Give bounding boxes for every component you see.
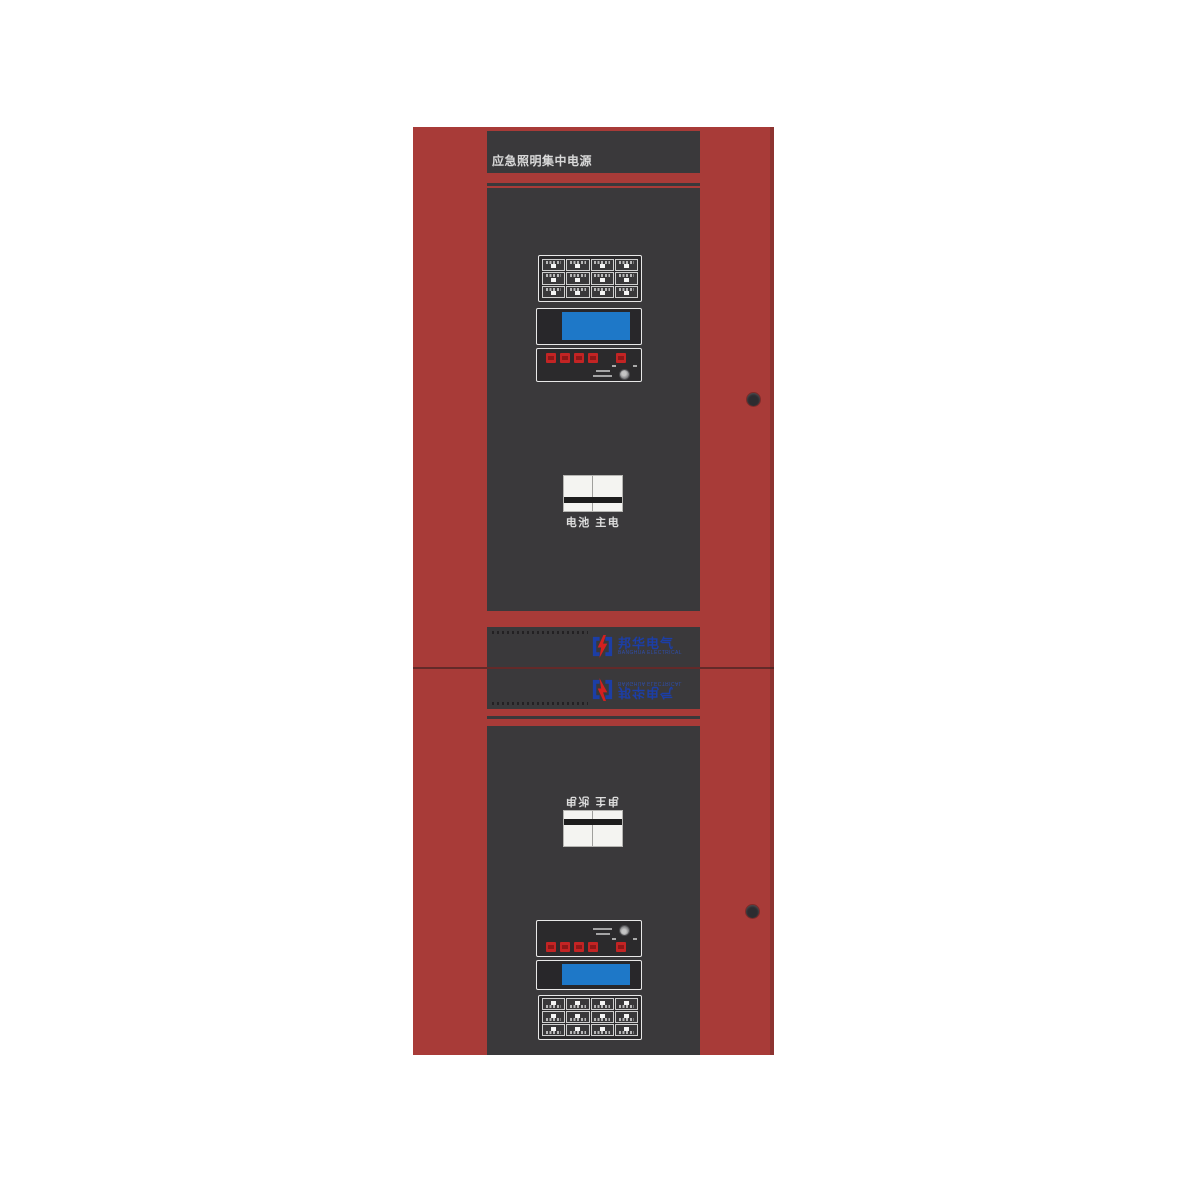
keypad-grid [542, 259, 638, 298]
function-key[interactable] [591, 1024, 614, 1036]
brand-band-upper: 邦华电气 BANGHUA ELECTRICAL [487, 627, 700, 667]
function-key[interactable] [542, 272, 565, 284]
brand-name: 邦华电气 [618, 637, 682, 650]
product-title: 应急照明集中电源 [492, 152, 592, 169]
function-keypad-upper [538, 255, 642, 302]
function-key-label [619, 1031, 634, 1034]
trim-line-top [487, 183, 700, 186]
brand-name: 邦华电气 [618, 686, 682, 699]
function-key-label [546, 1031, 561, 1034]
function-key[interactable] [615, 272, 638, 284]
function-key-label [594, 1005, 609, 1008]
function-key-label [570, 1005, 585, 1008]
brand-subtitle: BANGHUA ELECTRICAL [618, 680, 682, 685]
indicator-button-4[interactable] [588, 353, 598, 363]
function-key-button[interactable] [551, 278, 556, 282]
function-key-label [619, 274, 634, 277]
function-key-button[interactable] [624, 278, 629, 282]
function-key[interactable] [591, 1011, 614, 1023]
indicator-button-1[interactable] [546, 942, 556, 952]
key-switch-knob-upper[interactable] [619, 369, 630, 380]
function-key-label [546, 1005, 561, 1008]
function-key-label [546, 274, 561, 277]
power-cabinet: 应急照明集中电源 [413, 127, 774, 1055]
key-switch-knob-lower[interactable] [619, 925, 630, 936]
function-key[interactable] [615, 1024, 638, 1036]
function-key[interactable] [566, 286, 589, 298]
function-key[interactable] [591, 272, 614, 284]
indicator-button-3[interactable] [574, 353, 584, 363]
function-key-button[interactable] [551, 291, 556, 295]
trim-line-bottom [487, 716, 700, 719]
vent-dots [492, 702, 588, 705]
function-key-button[interactable] [624, 264, 629, 268]
cabinet-right-edge [770, 127, 774, 1055]
caption-line [593, 375, 612, 377]
indicator-button-5[interactable] [616, 353, 626, 363]
breaker-mains[interactable] [593, 476, 622, 511]
function-key-label [570, 1031, 585, 1034]
breaker-battery[interactable] [564, 476, 593, 511]
brand-band-lower-mirrored: 邦华电气 BANGHUA ELECTRICAL [487, 669, 700, 709]
function-key-label [619, 261, 634, 264]
function-key-label [546, 288, 561, 291]
function-key[interactable] [542, 998, 565, 1010]
function-key[interactable] [566, 1024, 589, 1036]
function-key-label [619, 1005, 634, 1008]
function-key[interactable] [615, 998, 638, 1010]
brand-logo: 邦华电气 BANGHUA ELECTRICAL [590, 634, 682, 659]
function-key-label [594, 1018, 609, 1021]
knob-tick [612, 365, 616, 367]
function-key-label [619, 288, 634, 291]
function-key-button[interactable] [600, 278, 605, 282]
function-key-button[interactable] [575, 264, 580, 268]
knob-tick [633, 938, 637, 940]
function-key[interactable] [566, 272, 589, 284]
main-panel-lower: 电池 主电 [487, 726, 700, 1055]
caption-line [596, 933, 610, 935]
function-key-button[interactable] [624, 291, 629, 295]
function-key[interactable] [615, 286, 638, 298]
function-key-label [594, 261, 609, 264]
brand-logo: 邦华电气 BANGHUA ELECTRICAL [590, 677, 682, 702]
function-key-label [570, 288, 585, 291]
function-key-button[interactable] [575, 278, 580, 282]
function-key-label [619, 1018, 634, 1021]
function-key-label [570, 274, 585, 277]
function-key-button[interactable] [551, 264, 556, 268]
lcd-panel-upper [536, 308, 642, 345]
breaker-label-upper: 电池 主电 [547, 514, 639, 530]
keypad-grid [542, 999, 638, 1036]
indicator-button-2[interactable] [560, 353, 570, 363]
function-key[interactable] [591, 259, 614, 271]
knob-tick [612, 938, 616, 940]
function-key-label [546, 261, 561, 264]
function-key[interactable] [615, 259, 638, 271]
breaker-state-band [564, 819, 622, 825]
brand-subtitle: BANGHUA ELECTRICAL [618, 651, 682, 656]
function-key[interactable] [542, 1011, 565, 1023]
function-key[interactable] [615, 1011, 638, 1023]
indicator-panel-upper [536, 348, 642, 382]
indicator-button-4[interactable] [588, 942, 598, 952]
breaker-switch-lower [563, 810, 623, 847]
indicator-panel-lower [536, 920, 642, 957]
function-key-label [594, 288, 609, 291]
function-key[interactable] [591, 998, 614, 1010]
product-image: 应急照明集中电源 [0, 0, 1200, 1200]
indicator-button-2[interactable] [560, 942, 570, 952]
function-key[interactable] [542, 259, 565, 271]
breaker-state-band [564, 497, 622, 503]
screw-hole-upper [747, 393, 760, 406]
function-key[interactable] [566, 1011, 589, 1023]
caption-line [596, 370, 610, 372]
function-key-button[interactable] [600, 291, 605, 295]
indicator-button-1[interactable] [546, 353, 556, 363]
indicator-button-3[interactable] [574, 942, 584, 952]
knob-tick [633, 365, 637, 367]
function-key-label [570, 261, 585, 264]
lcd-screen-upper [562, 312, 630, 340]
caption-line [593, 928, 612, 930]
function-key-button[interactable] [575, 291, 580, 295]
brand-logo-icon [590, 677, 615, 702]
function-key-label [546, 1018, 561, 1021]
lcd-screen-lower [562, 964, 630, 985]
function-key[interactable] [542, 286, 565, 298]
title-band: 应急照明集中电源 [487, 131, 700, 173]
breaker-label-lower: 电池 主电 [547, 794, 639, 810]
main-panel-upper: 电池 主电 [487, 188, 700, 611]
function-key-button[interactable] [600, 264, 605, 268]
function-key-label [594, 274, 609, 277]
function-key[interactable] [566, 998, 589, 1010]
brand-logo-icon [590, 634, 615, 659]
function-key-label [570, 1018, 585, 1021]
indicator-button-5[interactable] [616, 942, 626, 952]
function-key[interactable] [591, 286, 614, 298]
breaker-switch-upper [563, 475, 623, 512]
breaker-mains[interactable] [593, 811, 622, 846]
function-key[interactable] [542, 1024, 565, 1036]
breaker-battery[interactable] [564, 811, 593, 846]
lcd-panel-lower [536, 960, 642, 990]
screw-hole-lower [746, 905, 759, 918]
function-key-label [594, 1031, 609, 1034]
function-keypad-lower [538, 995, 642, 1040]
function-key[interactable] [566, 259, 589, 271]
vent-dots [492, 631, 588, 634]
